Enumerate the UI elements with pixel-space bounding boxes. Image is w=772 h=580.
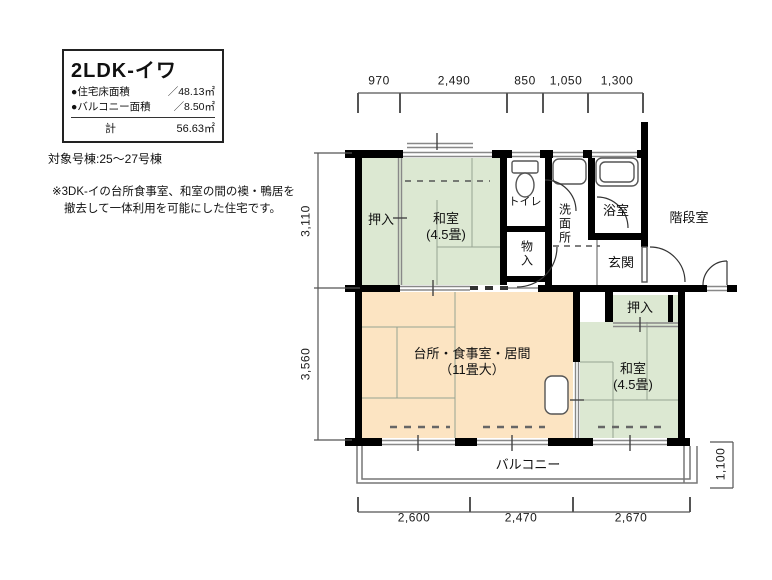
total-value: 56.63㎡ — [176, 120, 215, 136]
note-line-1: ※3DK-イの台所食事室、和室の間の襖・鴨居を — [52, 184, 295, 201]
label-washroom: 洗面所 — [557, 203, 572, 245]
balcony-area-label: ●バルコニー面積 — [71, 100, 151, 115]
dim-bottom-2600: 2,600 — [398, 511, 431, 526]
floor-area-label: ●住宅床面積 — [71, 85, 130, 100]
label-living: 台所・食事室・居間 （11畳大） — [413, 346, 530, 379]
label-balcony: バルコニー — [496, 457, 561, 473]
total-label: 計 — [105, 120, 116, 136]
kitchen-sink-icon — [545, 376, 568, 414]
dim-top-2490: 2,490 — [438, 74, 471, 89]
label-living-size: （11畳大） — [413, 362, 530, 378]
plan-title: 2LDK-イワ — [71, 54, 215, 83]
dim-left-3110: 3,110 — [299, 205, 314, 237]
label-entrance: 玄関 — [608, 255, 634, 271]
bathtub-inner-icon — [600, 162, 634, 182]
label-oshiire-left: 押入 — [368, 212, 394, 228]
label-stairwell: 階段室 — [669, 210, 708, 226]
dim-top-850: 850 — [514, 74, 536, 89]
washbasin-icon — [553, 159, 586, 184]
label-washitsu-top: 和室 (4.5畳) — [426, 211, 466, 244]
label-bath: 浴室 — [603, 203, 629, 219]
entrance-door-arc — [650, 247, 685, 282]
dim-right-1100: 1,100 — [714, 448, 729, 481]
floor-plan-page: 2LDK-イワ ●住宅床面積 ／48.13㎡ ●バルコニー面積 ／8.50㎡ 計… — [0, 0, 772, 580]
toilet-bowl-icon — [516, 173, 534, 197]
dim-bottom-2470: 2,470 — [505, 511, 538, 526]
label-storage: 物入 — [519, 240, 534, 268]
dim-top-1050: 1,050 — [550, 74, 583, 89]
label-washitsu-right-size: (4.5畳) — [613, 377, 653, 393]
label-oshiire-right: 押入 — [627, 300, 653, 316]
entrance-door-leaf — [642, 247, 647, 282]
stairwell-door-arc — [703, 261, 727, 285]
target-building-line: 対象号棟:25〜27号棟 — [48, 150, 162, 167]
floor-area-row: ●住宅床面積 ／48.13㎡ — [71, 85, 215, 100]
dim-top-1300: 1,300 — [601, 74, 634, 89]
label-washitsu-right-name: 和室 — [613, 361, 653, 377]
floor-area-value: ／48.13㎡ — [168, 85, 215, 100]
label-living-name: 台所・食事室・居間 — [413, 346, 530, 362]
label-washitsu-right: 和室 (4.5畳) — [613, 361, 653, 394]
note-text: ※3DK-イの台所食事室、和室の間の襖・鴨居を 撤去して一体利用を可能にした住宅… — [52, 184, 295, 218]
label-washitsu-top-name: 和室 — [426, 211, 466, 227]
title-box: 2LDK-イワ ●住宅床面積 ／48.13㎡ ●バルコニー面積 ／8.50㎡ 計… — [62, 49, 224, 143]
label-washitsu-top-size: (4.5畳) — [426, 227, 466, 243]
balcony-area-value: ／8.50㎡ — [174, 100, 215, 115]
total-area-row: 計 56.63㎡ — [71, 117, 215, 136]
dim-left-3560: 3,560 — [299, 348, 314, 381]
dim-top-970: 970 — [368, 74, 390, 89]
balcony-area-row: ●バルコニー面積 ／8.50㎡ — [71, 100, 215, 115]
toilet-tank-icon — [512, 161, 538, 173]
note-line-2: 撤去して一体利用を可能にした住宅です。 — [64, 201, 295, 218]
dim-bottom-2670: 2,670 — [615, 511, 648, 526]
label-toilet: トイレ — [509, 196, 542, 210]
